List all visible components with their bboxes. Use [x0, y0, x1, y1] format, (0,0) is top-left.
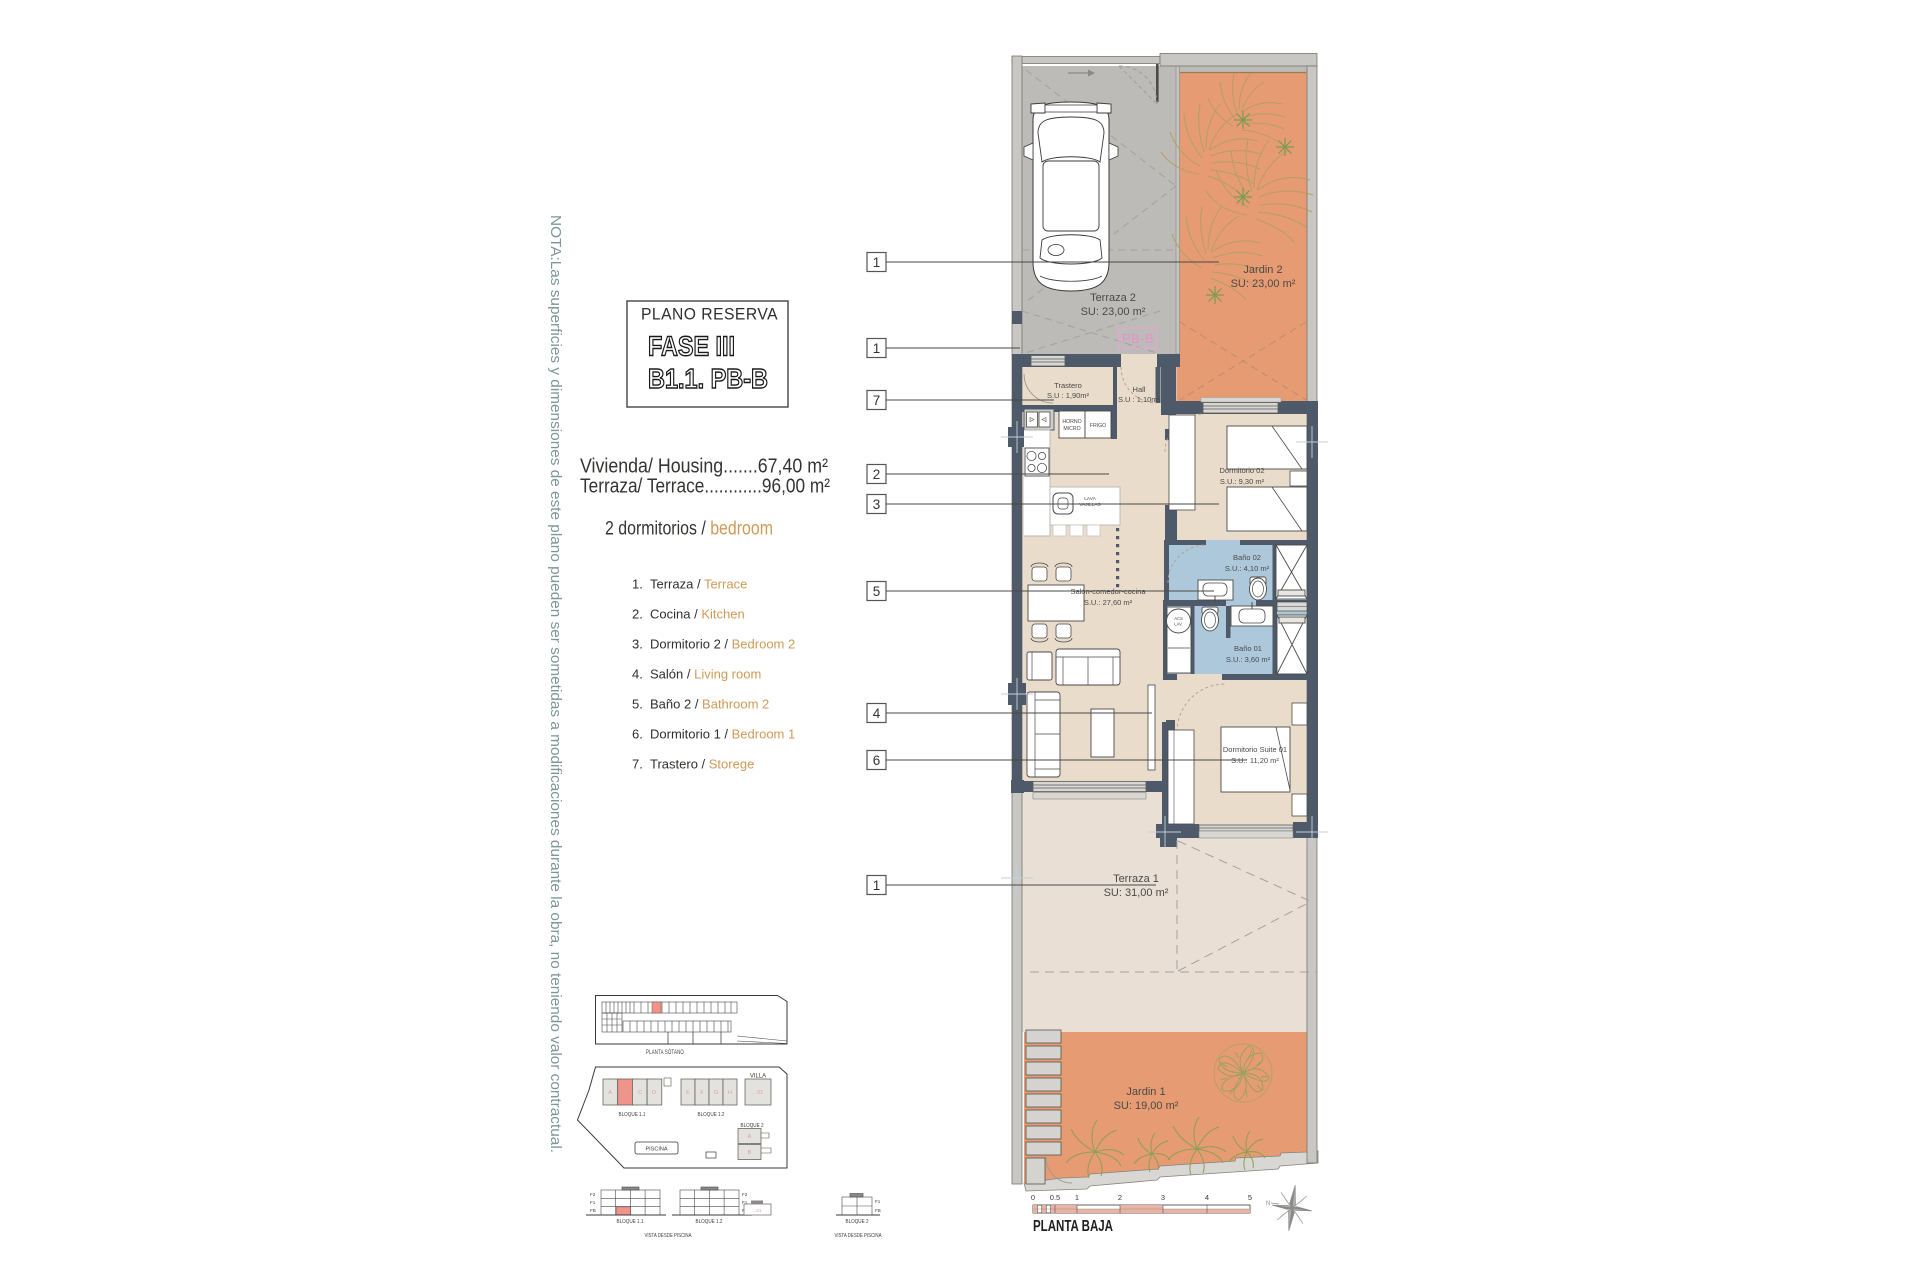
svg-text:F1: F1 [590, 1200, 596, 1205]
svg-text:PB-B: PB-B [1122, 331, 1154, 346]
svg-text:FB: FB [875, 1208, 881, 1213]
svg-text:2 dormitorios / bedroom: 2 dormitorios / bedroom [605, 519, 773, 540]
svg-text:Baño 01: Baño 01 [1234, 644, 1262, 653]
svg-text:BLOQUE 2: BLOQUE 2 [846, 1219, 869, 1225]
svg-text:LAVA: LAVA [1084, 496, 1096, 502]
svg-text:Dormitorio 1 / Bedroom 1: Dormitorio 1 / Bedroom 1 [650, 727, 795, 742]
svg-text:0: 0 [1031, 1193, 1035, 1202]
svg-text:PLANTA SÓTANO: PLANTA SÓTANO [646, 1049, 684, 1056]
svg-text:6: 6 [873, 753, 881, 768]
svg-text:BLOQUE 1.1: BLOQUE 1.1 [619, 1112, 646, 1118]
svg-text:1: 1 [1075, 1193, 1079, 1202]
svg-text:BLOQUE 2: BLOQUE 2 [741, 1123, 764, 1129]
svg-text:Jardin 2: Jardin 2 [1243, 264, 1282, 276]
svg-text:0.5: 0.5 [1050, 1193, 1060, 1202]
svg-text:Baño 02: Baño 02 [1233, 553, 1261, 562]
svg-text:S.U.: 4,10 m²: S.U.: 4,10 m² [1225, 564, 1270, 573]
svg-text:BLOQUE 1.2: BLOQUE 1.2 [698, 1112, 725, 1118]
svg-text:SU: 23,00 m²: SU: 23,00 m² [1081, 306, 1146, 318]
svg-text:SU: 31,00 m²: SU: 31,00 m² [1104, 887, 1169, 899]
svg-text:F2: F2 [590, 1192, 596, 1197]
svg-text:N: N [1266, 1201, 1270, 1207]
svg-text:A: A [748, 1134, 752, 1140]
svg-text:5: 5 [873, 584, 881, 599]
svg-text:MICRO: MICRO [1063, 426, 1080, 432]
svg-text:7: 7 [873, 393, 881, 408]
svg-text:D: D [652, 1090, 656, 1096]
svg-text:VILLA: VILLA [750, 1074, 766, 1080]
svg-text:4.: 4. [632, 667, 643, 682]
svg-text:S.U : 1,10m²: S.U : 1,10m² [1118, 395, 1161, 404]
svg-text:H: H [728, 1090, 732, 1096]
svg-text:FRIGO: FRIGO [1090, 423, 1106, 429]
svg-text:Trastero / Storege: Trastero / Storege [650, 757, 754, 772]
svg-text:5.: 5. [632, 697, 643, 712]
svg-text:6.: 6. [632, 727, 643, 742]
svg-text:Baño 2 / Bathroom 2: Baño 2 / Bathroom 2 [650, 697, 769, 712]
svg-text:A: A [608, 1090, 612, 1096]
svg-text:2.: 2. [632, 607, 643, 622]
svg-text:PLANTA BAJA: PLANTA BAJA [1033, 1218, 1113, 1235]
svg-text:VAJILLAS: VAJILLAS [1079, 502, 1101, 508]
svg-text:F2: F2 [742, 1192, 748, 1197]
svg-text:FB: FB [590, 1208, 596, 1213]
svg-text:1.: 1. [632, 577, 643, 592]
svg-text:B: B [748, 1150, 752, 1156]
svg-text:7.: 7. [632, 757, 643, 772]
svg-text:B: B [623, 1090, 627, 1096]
svg-text:4: 4 [1205, 1193, 1209, 1202]
svg-text:S.U : 1,90m²: S.U : 1,90m² [1047, 391, 1090, 400]
svg-text:LAV.: LAV. [1174, 622, 1182, 627]
svg-text:1: 1 [873, 255, 881, 270]
svg-text:5: 5 [1248, 1193, 1252, 1202]
svg-text:FASE III: FASE III [648, 331, 735, 362]
svg-text:PLANO RESERVA: PLANO RESERVA [641, 306, 778, 324]
svg-text:2: 2 [1118, 1193, 1122, 1202]
svg-text:...01: ...01 [753, 1208, 762, 1213]
svg-text:Hall: Hall [1133, 385, 1146, 394]
svg-text:1: 1 [873, 341, 881, 356]
svg-text:S.U.: 3,60 m²: S.U.: 3,60 m² [1226, 655, 1271, 664]
svg-text:Salón / Living room: Salón / Living room [650, 667, 761, 682]
svg-text:Cocina / Kitchen: Cocina / Kitchen [650, 607, 745, 622]
svg-text:3: 3 [1161, 1193, 1165, 1202]
svg-text:Jardin 1: Jardin 1 [1126, 1086, 1165, 1098]
svg-text:3.: 3. [632, 637, 643, 652]
svg-text:PISCINA: PISCINA [645, 1147, 667, 1153]
svg-text:E: E [686, 1090, 690, 1096]
svg-text:BLOQUE 1.1: BLOQUE 1.1 [617, 1219, 644, 1225]
svg-text:NOTA:Las superficies y dimensi: NOTA:Las superficies y dimensiones de es… [547, 215, 563, 1153]
svg-text:3: 3 [873, 497, 881, 512]
svg-text:ACS: ACS [1174, 616, 1183, 621]
svg-text:VISTA DESDE PISCINA: VISTA DESDE PISCINA [835, 1233, 882, 1239]
svg-text:Terraza/ Terrace............96: Terraza/ Terrace............96,00 m² [580, 475, 830, 498]
svg-text:Salón-comedor-cocina: Salón-comedor-cocina [1070, 587, 1146, 596]
svg-text:F1: F1 [875, 1199, 881, 1204]
svg-text:Terraza 1: Terraza 1 [1113, 873, 1159, 885]
svg-text:Dormitorio 02: Dormitorio 02 [1219, 466, 1264, 475]
svg-text:S.U.: 27,60 m²: S.U.: 27,60 m² [1084, 598, 1133, 607]
svg-text:C: C [638, 1090, 642, 1096]
svg-text:HORNO: HORNO [1062, 419, 1081, 425]
svg-text:S.U.: 9,30 m²: S.U.: 9,30 m² [1220, 477, 1265, 486]
svg-text:Terraza 2: Terraza 2 [1090, 292, 1136, 304]
svg-text:...01: ...01 [753, 1090, 764, 1096]
svg-text:4: 4 [873, 706, 881, 721]
svg-text:B1.1. PB-B: B1.1. PB-B [648, 363, 768, 394]
svg-text:Dormitorio 2 / Bedroom 2: Dormitorio 2 / Bedroom 2 [650, 637, 795, 652]
svg-text:Terraza / Terrace: Terraza / Terrace [650, 577, 747, 592]
svg-text:1: 1 [873, 878, 881, 893]
svg-text:SU: 23,00 m²: SU: 23,00 m² [1231, 278, 1296, 290]
svg-text:Trastero: Trastero [1054, 381, 1082, 390]
svg-text:S.U.: 11,20 m²: S.U.: 11,20 m² [1231, 756, 1279, 765]
svg-text:VISTA DESDE PISCINA: VISTA DESDE PISCINA [645, 1233, 692, 1239]
svg-text:Dormitorio Suite 01: Dormitorio Suite 01 [1223, 745, 1287, 754]
svg-text:2: 2 [873, 467, 881, 482]
svg-text:G: G [714, 1090, 718, 1096]
svg-text:BLOQUE 1.2: BLOQUE 1.2 [696, 1219, 723, 1225]
svg-text:SU: 19,00 m²: SU: 19,00 m² [1114, 1100, 1179, 1112]
